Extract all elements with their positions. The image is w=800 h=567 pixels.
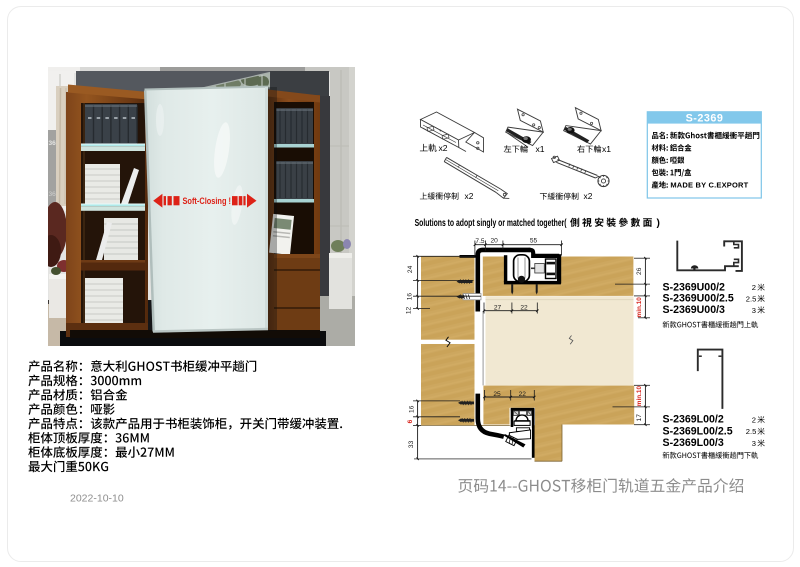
svg-text:3: 3 [752, 439, 756, 448]
svg-text:S-2369U00/2.5: S-2369U00/2.5 [663, 293, 734, 305]
svg-text:2.5: 2.5 [746, 427, 757, 436]
svg-text:Soft-Closing !: Soft-Closing ! [183, 196, 232, 206]
svg-text:20: 20 [491, 238, 499, 245]
svg-text:x1: x1 [536, 144, 545, 154]
svg-text:26: 26 [636, 267, 643, 275]
svg-text:x2: x2 [439, 143, 448, 153]
svg-text:55: 55 [530, 238, 538, 245]
svg-text:S-2369L00/2: S-2369L00/2 [663, 414, 724, 426]
svg-text:36: 36 [49, 140, 57, 147]
svg-text:25: 25 [493, 391, 501, 398]
svg-text:12: 12 [406, 307, 413, 315]
svg-text:min.10: min.10 [636, 297, 643, 318]
svg-text:S-2369U00/2: S-2369U00/2 [663, 281, 726, 293]
svg-text:x1: x1 [602, 144, 611, 154]
svg-text:x2: x2 [584, 191, 593, 201]
svg-text:22: 22 [519, 391, 527, 398]
svg-text:Solutions to adopt singly or m: Solutions to adopt singly or matched tog… [415, 218, 567, 229]
svg-text:22: 22 [520, 304, 528, 311]
svg-text:2022-10-10: 2022-10-10 [70, 493, 124, 505]
svg-text:x2: x2 [465, 191, 474, 201]
svg-text:6: 6 [407, 419, 414, 423]
svg-text:min.10: min.10 [636, 386, 643, 407]
svg-text:16: 16 [407, 293, 414, 301]
svg-text:2: 2 [752, 283, 756, 292]
svg-text:16: 16 [409, 405, 416, 413]
svg-text:S-2369: S-2369 [686, 113, 724, 125]
svg-text:): ) [657, 218, 660, 229]
svg-text:17: 17 [636, 414, 643, 422]
svg-text:24: 24 [407, 265, 414, 273]
svg-text:7.5: 7.5 [475, 238, 484, 245]
svg-text:3: 3 [752, 306, 756, 315]
svg-text:36: 36 [49, 191, 57, 198]
svg-text:2.5: 2.5 [746, 294, 757, 303]
svg-text:33: 33 [408, 440, 415, 448]
svg-text:S-2369L00/2.5: S-2369L00/2.5 [663, 425, 733, 437]
svg-text:MADE BY C.EXPORT: MADE BY C.EXPORT [670, 181, 748, 190]
svg-text:27: 27 [494, 304, 502, 311]
svg-text:2: 2 [752, 416, 756, 425]
svg-text:S-2369L00/3: S-2369L00/3 [663, 437, 724, 449]
svg-text:S-2369U00/3: S-2369U00/3 [663, 304, 726, 316]
